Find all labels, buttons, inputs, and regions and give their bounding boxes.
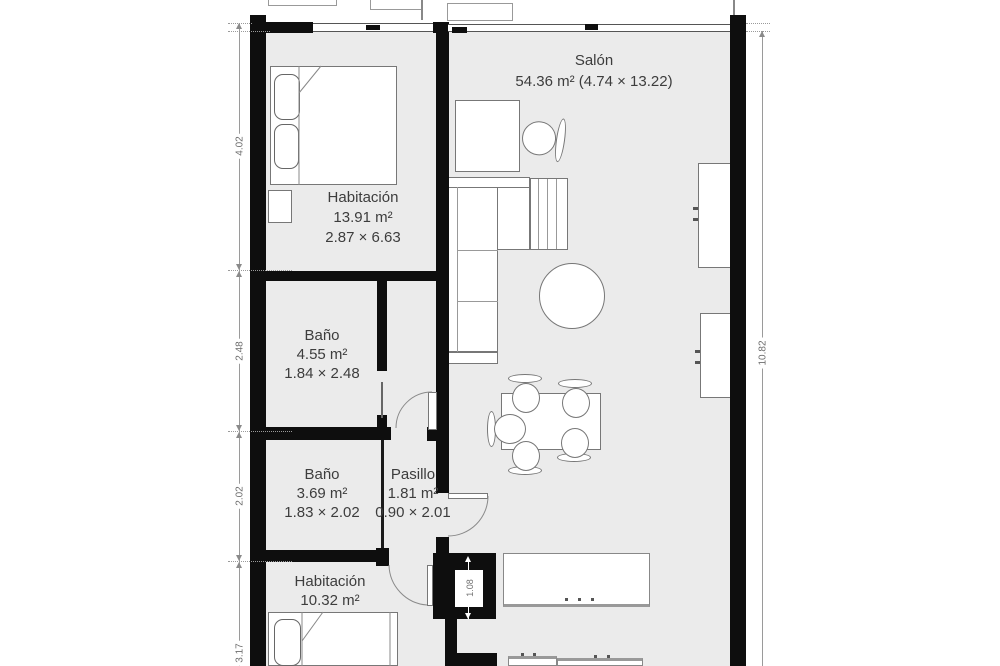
dining-chair: [561, 428, 589, 458]
room-area: 10.32 m²: [295, 591, 366, 610]
room-area: 13.91 m²: [325, 208, 400, 228]
wall-segment: [445, 653, 497, 666]
dimension-arrow: [236, 432, 242, 438]
dining-chair: [558, 379, 592, 388]
desk: [455, 100, 520, 172]
dimension-label: 3.17: [234, 640, 247, 665]
room-name: Baño: [284, 465, 359, 484]
wall-segment: [376, 548, 389, 566]
dining-chair: [512, 441, 540, 471]
room-label-bedroom-bottom: Habitación 10.32 m²: [295, 572, 366, 610]
cabinet-handle: [693, 207, 698, 210]
room-name: Baño: [284, 326, 359, 345]
dimension-label: 1.08: [464, 576, 476, 600]
dining-chair: [508, 374, 542, 383]
dimension-arrow: [236, 562, 242, 568]
sofa-armrest: [446, 352, 498, 364]
door-leaf: [448, 493, 488, 499]
sofa: [446, 187, 498, 352]
room-label-bathroom-small: Baño 3.69 m² 1.83 × 2.02: [284, 465, 359, 522]
room-area: 1.81 m²: [375, 484, 450, 503]
extension-line: [746, 23, 770, 24]
sofa-cushion-line: [457, 301, 498, 302]
counter-knob: [594, 655, 597, 658]
dimension-arrow: [465, 556, 471, 562]
dimension-arrow: [236, 555, 242, 561]
floor-plan: 4.02 2.48 2.02 3.17 10.82 1.08 Salón 54.…: [0, 0, 1000, 666]
bathroom-wall: [266, 427, 391, 440]
armchair: [530, 178, 568, 250]
dimension-label: 10.82: [757, 337, 770, 368]
terrace-divider: [733, 0, 735, 15]
room-label-salon: Salón 54.36 m² (4.74 × 13.22): [515, 50, 672, 92]
armchair-line: [538, 179, 539, 249]
room-size: 1.84 × 2.48: [284, 364, 359, 383]
room-label-bedroom-top: Habitación 13.91 m² 2.87 × 6.63: [325, 188, 400, 248]
dining-chair: [494, 414, 526, 444]
dimension-arrow: [465, 613, 471, 619]
kitchen-counter: [557, 658, 643, 666]
sofa-cushion-line: [457, 187, 458, 352]
counter-knob: [521, 653, 524, 656]
window-mullion: [366, 25, 380, 30]
room-area: 3.69 m²: [284, 484, 359, 503]
extension-line: [228, 31, 270, 32]
dimension-arrow: [236, 271, 242, 277]
dimension-arrow: [236, 23, 242, 29]
pillow: [274, 619, 301, 666]
sofa-cushion-line: [457, 250, 498, 251]
pillow: [274, 124, 299, 169]
dimension-label: 2.02: [234, 483, 247, 508]
door-leaf: [428, 392, 437, 430]
counter-knob: [533, 653, 536, 656]
window-mullion: [585, 24, 598, 30]
desk-chair: [517, 111, 571, 167]
cabinet-handle: [693, 218, 698, 221]
armchair-line: [556, 179, 557, 249]
dimension-label: 4.02: [234, 133, 247, 158]
room-label-hallway: Pasillo 1.81 m² 0.90 × 2.01: [375, 465, 450, 522]
bathroom-wall: [377, 281, 387, 371]
room-name: Pasillo: [375, 465, 450, 484]
counter-knob: [578, 598, 581, 601]
room-name: Habitación: [295, 572, 366, 591]
room-name: Habitación: [325, 188, 400, 208]
kitchen-counter: [503, 553, 650, 607]
terrace-planter: [447, 3, 513, 21]
dimension-label: 2.48: [234, 338, 247, 363]
dimension-arrow: [236, 264, 242, 270]
dining-chair: [562, 388, 590, 418]
room-name: Salón: [515, 50, 672, 71]
counter-knob: [565, 598, 568, 601]
door-leaf: [427, 565, 433, 606]
door-leaf: [381, 382, 383, 418]
tv-cabinet: [698, 163, 732, 268]
terrace-furniture: [268, 0, 337, 6]
nightstand: [268, 190, 292, 223]
room-size: 2.87 × 6.63: [325, 228, 400, 248]
cabinet-handle: [695, 361, 700, 364]
interior-wall: [436, 22, 449, 493]
dimension-arrow: [759, 31, 765, 37]
room-area: 4.55 m²: [284, 345, 359, 364]
terrace-furniture: [370, 0, 422, 10]
counter-knob: [607, 655, 610, 658]
exterior-wall-right: [730, 15, 746, 666]
exterior-wall-left: [250, 15, 266, 666]
window-mullion: [452, 27, 467, 33]
room-size: 1.83 × 2.02: [284, 503, 359, 522]
kitchen-counter: [508, 656, 557, 666]
room-label-bathroom-large: Baño 4.55 m² 1.84 × 2.48: [284, 326, 359, 383]
dimension-arrow: [236, 425, 242, 431]
cabinet-handle: [695, 350, 700, 353]
dining-chair: [512, 383, 540, 413]
terrace-divider: [421, 0, 423, 20]
coffee-table: [539, 263, 605, 329]
extension-line: [746, 31, 770, 32]
bathroom-wall: [266, 271, 447, 281]
pillow: [274, 74, 300, 120]
room-size: 0.90 × 2.01: [375, 503, 450, 522]
armchair-line: [547, 179, 548, 249]
counter-knob: [591, 598, 594, 601]
room-details: 54.36 m² (4.74 × 13.22): [515, 71, 672, 92]
sideboard: [700, 313, 732, 398]
